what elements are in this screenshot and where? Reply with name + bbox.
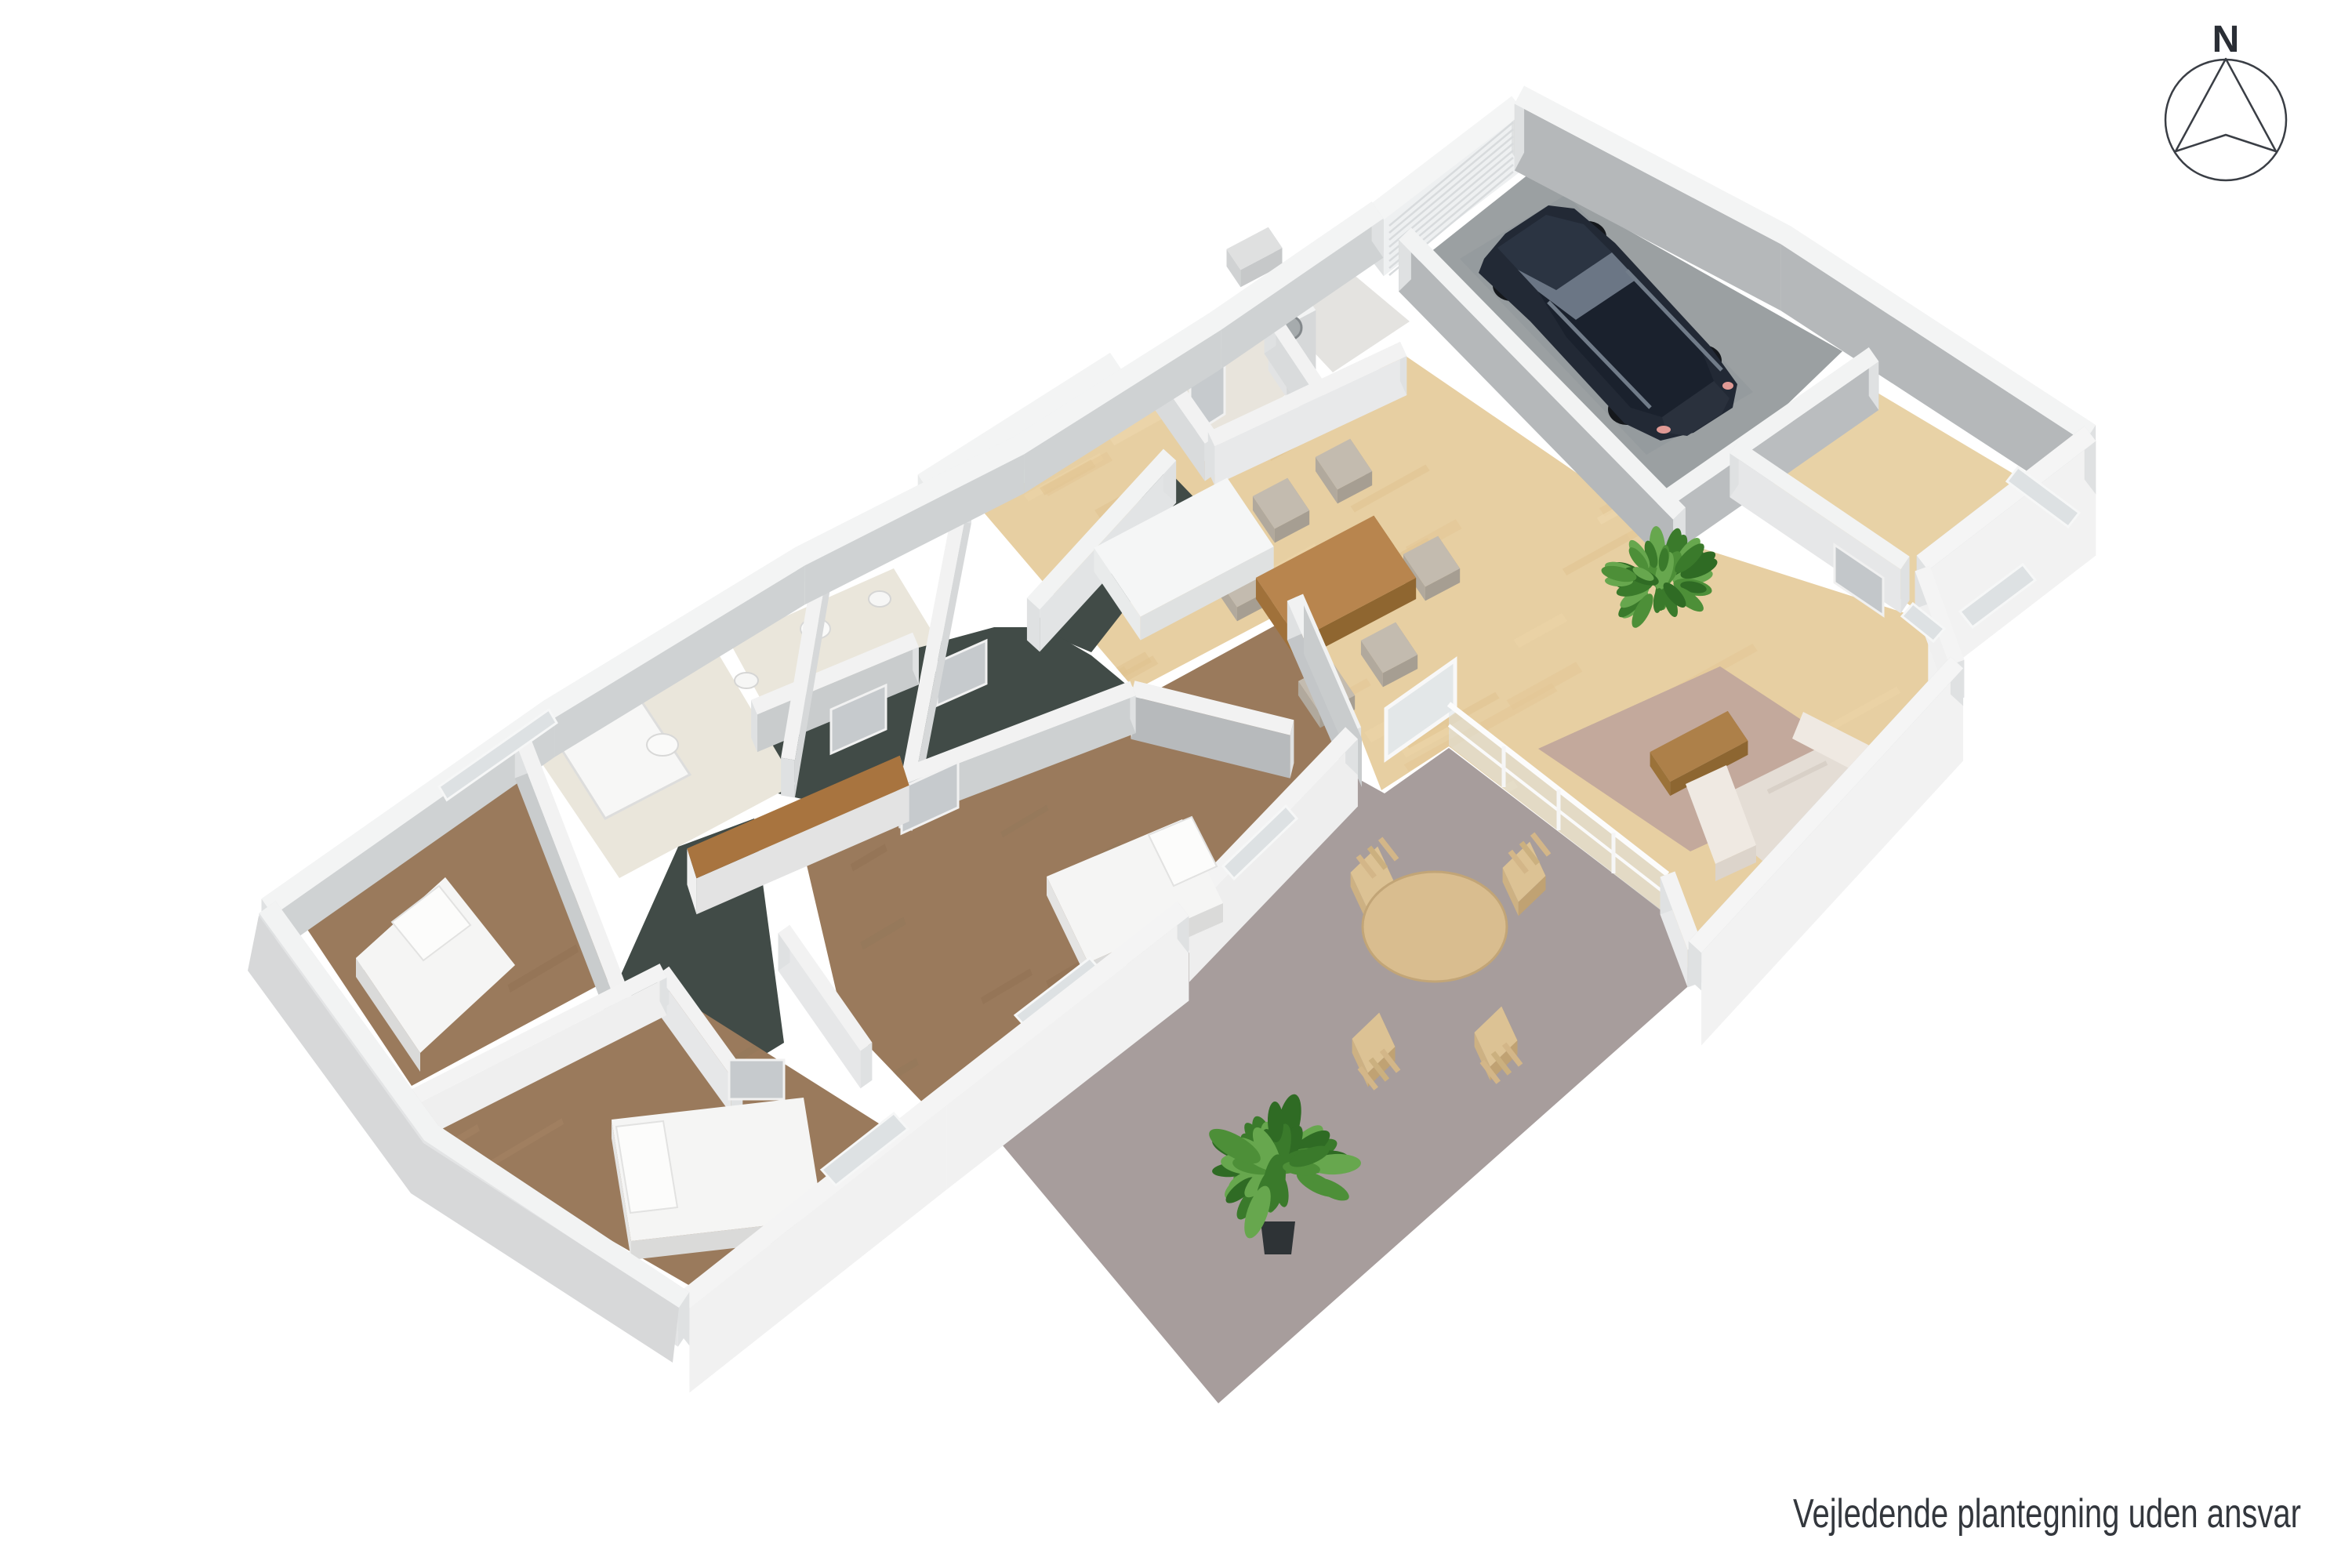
svg-text:Vejledende plantegning uden an: Vejledende plantegning uden ansvar <box>1793 1491 2301 1537</box>
svg-text:N: N <box>2212 19 2240 60</box>
